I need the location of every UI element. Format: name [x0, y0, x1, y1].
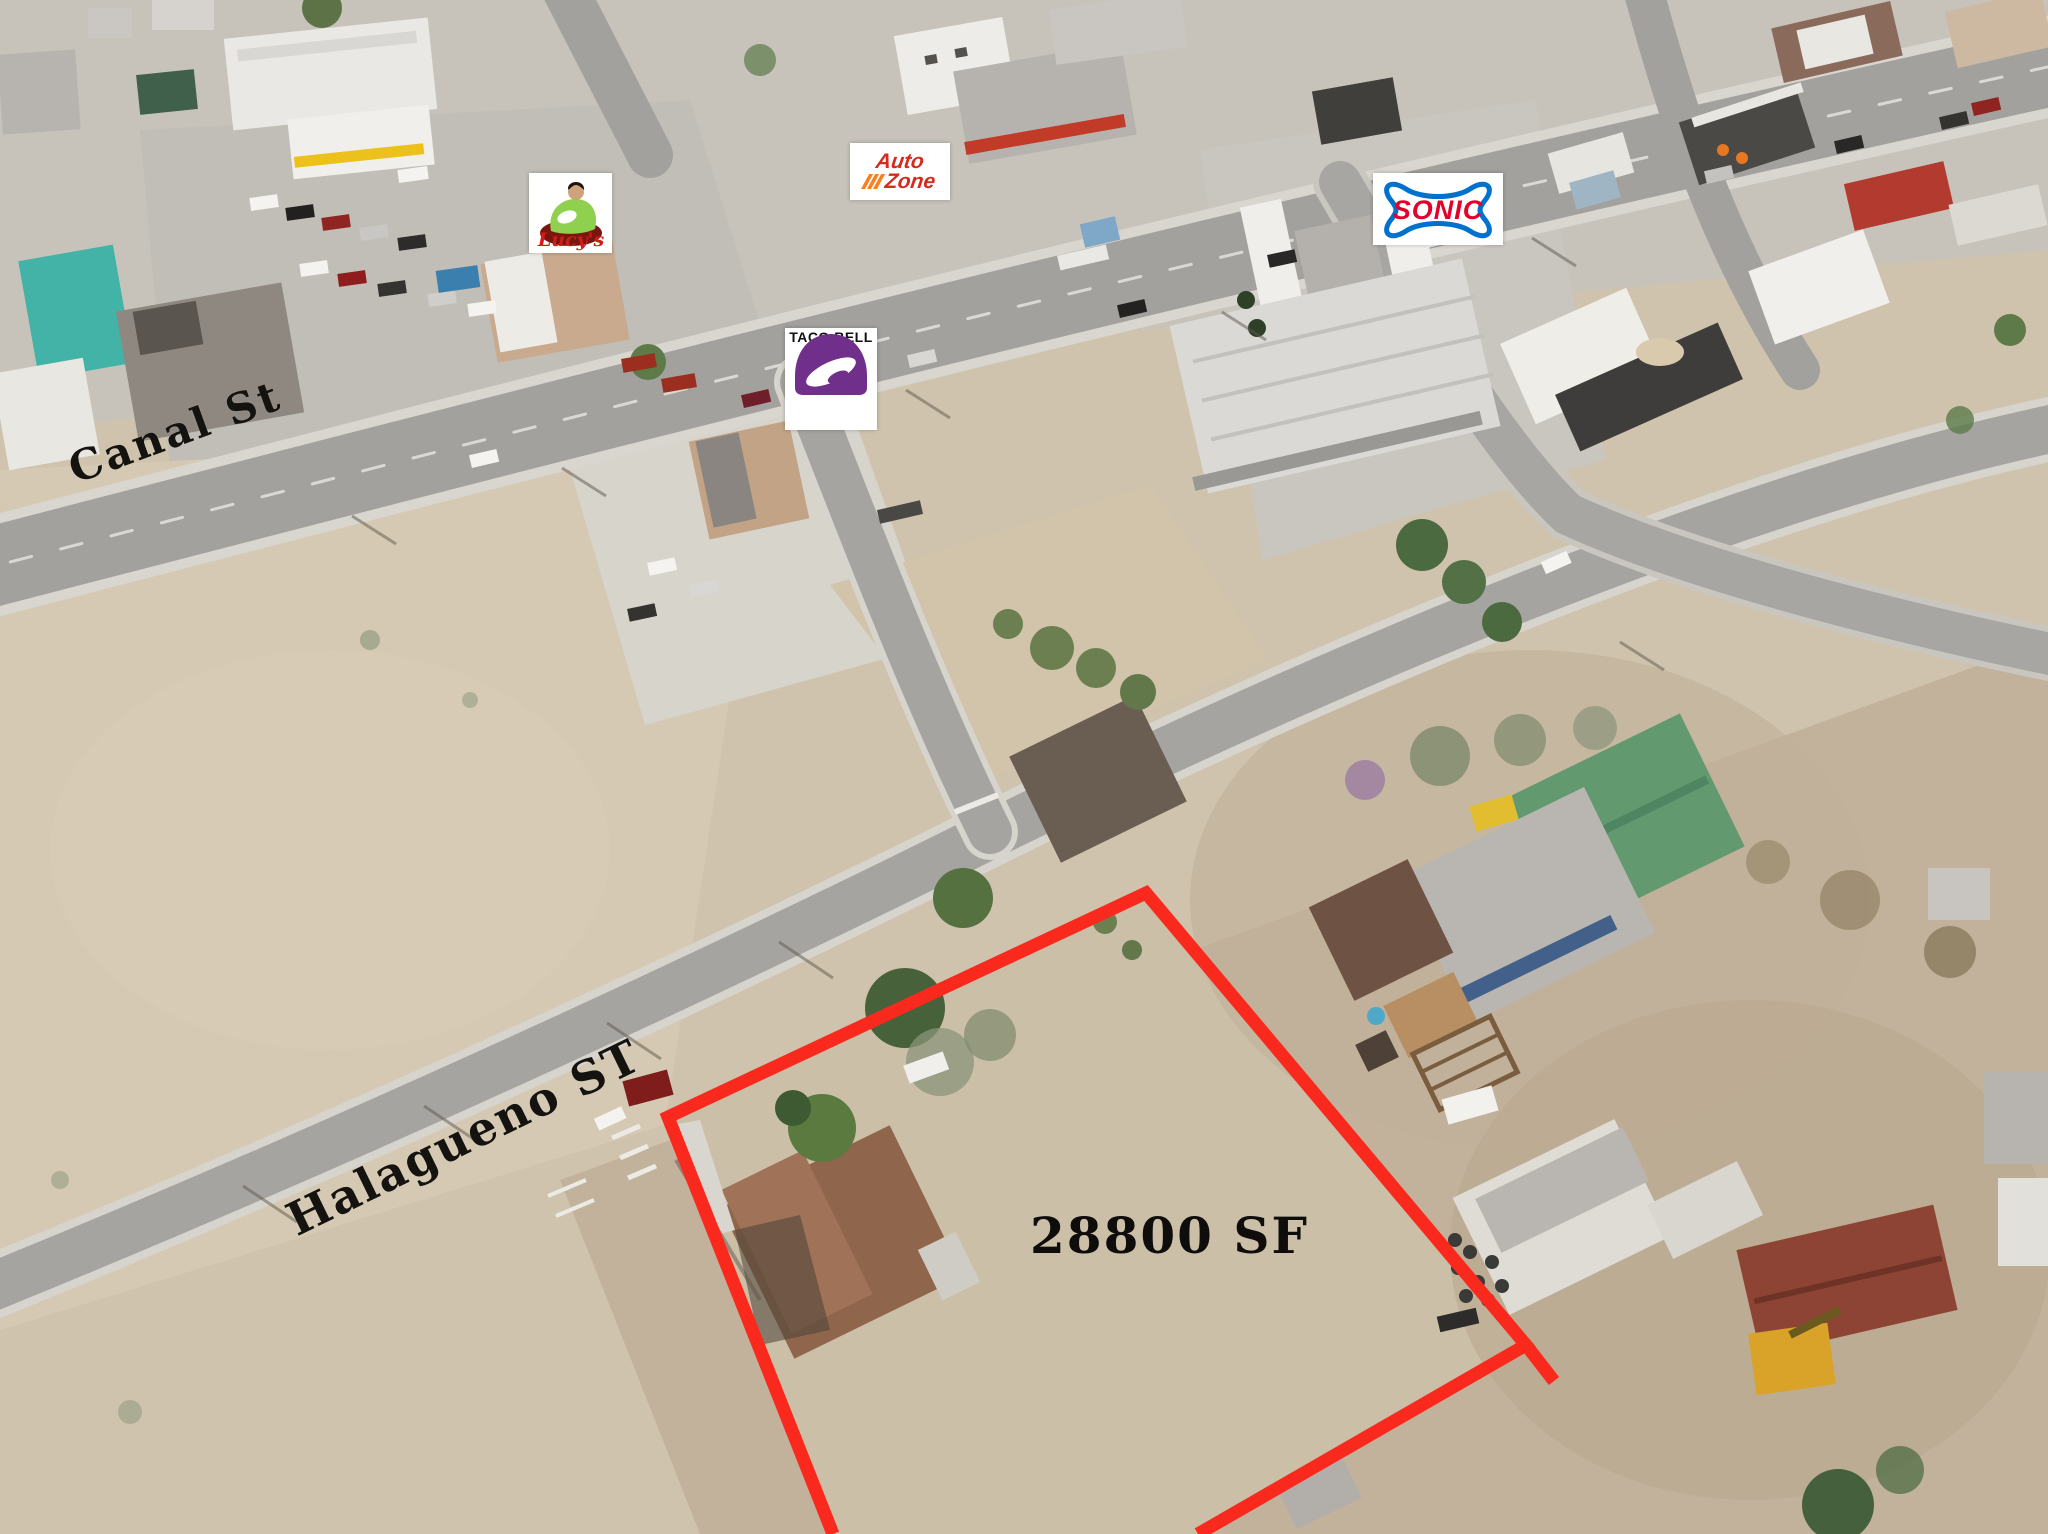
autozone-text-zone: Zone — [884, 172, 937, 192]
aerial-photo: Canal St Halagueno ST 28800 SF Lucy's Au… — [0, 0, 2048, 1534]
lucys-logo: Lucy's — [529, 173, 612, 253]
autozone-line2: Zone — [864, 172, 937, 192]
tacobell-bell-icon — [785, 328, 877, 408]
autozone-slashes-icon — [864, 174, 884, 189]
lucys-logo-text: Lucy's — [537, 229, 605, 251]
lucys-logo-art: Lucy's — [529, 173, 612, 253]
autozone-logo: Auto Zone — [850, 143, 950, 200]
annotation-overlay: Canal St Halagueno ST 28800 SF Lucy's Au… — [0, 0, 2048, 1534]
sonic-logo-art: SONIC — [1373, 173, 1503, 245]
sonic-logo: SONIC — [1373, 173, 1503, 245]
canal-st-label: Canal St — [62, 371, 288, 493]
parcel-area-label: 28800 SF — [1030, 1206, 1309, 1265]
autozone-text-auto: Auto — [875, 152, 926, 172]
tacobell-logo: TACO BELL — [785, 328, 877, 430]
autozone-line1: Auto — [875, 152, 926, 172]
halagueno-st-label: Halagueno ST — [278, 1028, 650, 1246]
sonic-logo-text: SONIC — [1393, 195, 1484, 225]
